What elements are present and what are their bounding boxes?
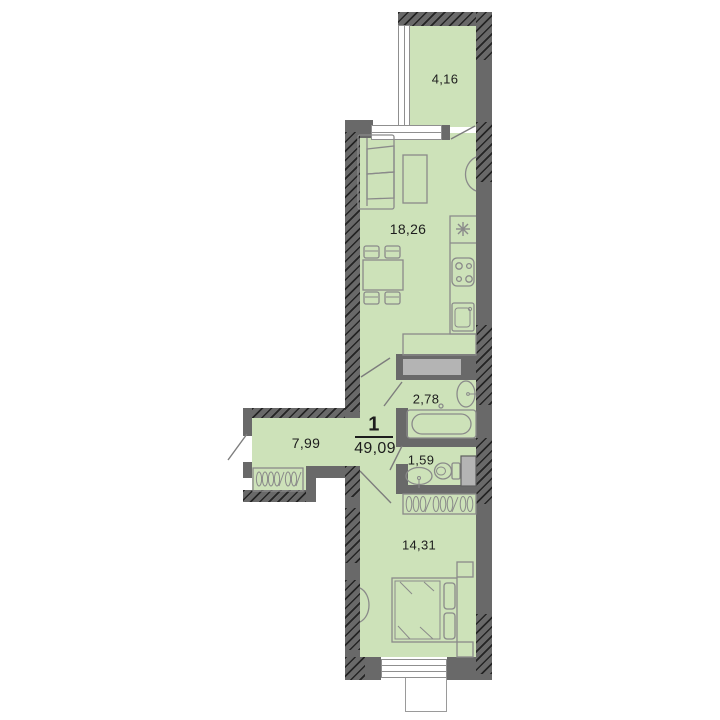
bathroom-door-leaf [384, 382, 402, 406]
entrance-door-leaf [228, 434, 247, 460]
bathroom-area-label: 2,78 [413, 392, 440, 407]
wardrobe-hangers-bedroom [403, 494, 476, 514]
furniture-layer [0, 0, 720, 720]
bed [392, 578, 457, 642]
balcony-area-label: 4,16 [432, 72, 459, 87]
bedroom-area-label: 14,31 [402, 538, 436, 553]
chair [364, 246, 400, 304]
balcony-door-leaf [451, 126, 475, 139]
bedroom-door-leaf [360, 471, 391, 503]
ventilation-duct-box [461, 456, 476, 486]
apartment-total-area: 49,09 [354, 440, 396, 458]
title-divider [355, 436, 393, 438]
nightstand [457, 562, 473, 657]
wardrobe-hangers-hallway [253, 468, 303, 491]
dining-table [363, 260, 403, 290]
radiator-icon [360, 588, 369, 622]
washbasin-toilet [406, 468, 432, 489]
toilet-area-label: 1,59 [408, 453, 435, 468]
hallway-area-label: 7,99 [292, 435, 320, 451]
toilet-bowl [435, 463, 461, 479]
sofa [358, 135, 394, 209]
coffee-table [403, 155, 427, 203]
kitchen-vent-asterisk-icon [456, 222, 470, 236]
apartment-rooms-count: 1 [368, 414, 379, 437]
floor-plan: 4,16 18,26 2,78 7,99 1,59 14,31 1 49,09 [0, 0, 720, 720]
corridor-door-leaf [361, 358, 390, 377]
cabinet [403, 334, 476, 355]
kitchen-sink [452, 303, 474, 331]
washbasin-bathroom [457, 381, 476, 407]
radiator-icon [466, 157, 477, 191]
living-kitchen-area-label: 18,26 [390, 221, 427, 237]
bathtub [407, 404, 476, 438]
stove [452, 258, 474, 286]
